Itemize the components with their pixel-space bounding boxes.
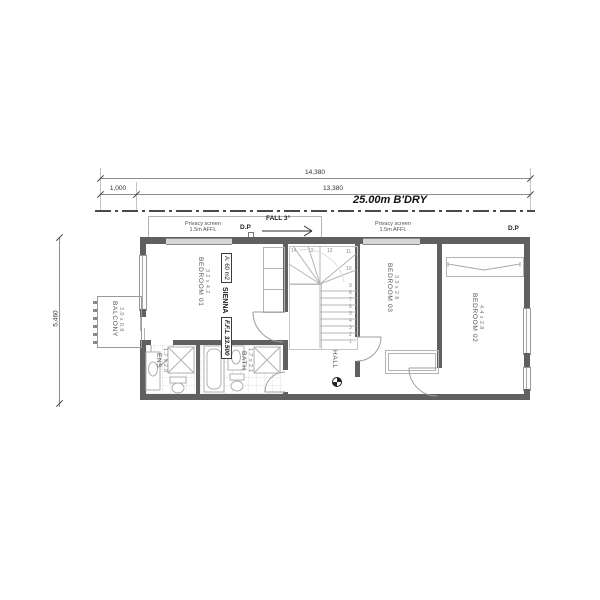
plan-series-label: SIENNA bbox=[221, 285, 232, 315]
stair-number: 13 bbox=[308, 248, 314, 254]
floor-plan: 14,380 1,000 13,380 25.00m B'DRY 5,460 P… bbox=[0, 0, 600, 600]
stair-number: 3 bbox=[349, 325, 352, 331]
room-dims: 3.0 x 0.9 bbox=[118, 301, 124, 337]
room-name: BEDROOM 01 bbox=[197, 257, 204, 307]
extension-line bbox=[530, 168, 531, 212]
stair-number: 12 bbox=[327, 248, 333, 254]
area-label: A: 60 m2 bbox=[221, 253, 232, 283]
downpipe-label-right: D.P bbox=[508, 225, 519, 232]
privacy-screen-note-right: Privacy screen 1.5m AFFL bbox=[362, 221, 424, 234]
dimension-line-total bbox=[100, 178, 530, 179]
room-name: BEDROOM 02 bbox=[471, 293, 478, 343]
privacy-screen-text: Privacy screen bbox=[185, 221, 221, 227]
privacy-screen-note-left: Privacy screen 1.5m AFFL bbox=[168, 221, 238, 234]
stair-number: 6 bbox=[349, 304, 352, 310]
smoke-alarm-icon bbox=[333, 378, 342, 387]
stair-number: 1 bbox=[349, 339, 352, 345]
ens-label: ENS 1.7 x 2.0 bbox=[155, 348, 168, 373]
robe-shelf bbox=[263, 268, 283, 269]
plan-info-group: A: 60 m2 SIENNA F.F.L 33.500 bbox=[221, 253, 232, 359]
robe-bed1 bbox=[263, 247, 285, 313]
stair-number: 2 bbox=[349, 332, 352, 338]
bedroom-02-label: BEDROOM 02 4.4 x 2.8 bbox=[471, 293, 484, 343]
stair-number: 10 bbox=[346, 266, 352, 272]
wall-right-seg bbox=[524, 389, 530, 400]
dimension-line-split bbox=[100, 194, 530, 195]
wall-stub bbox=[283, 392, 288, 394]
bedroom-03-label: BEDROOM 03 3.3 x 2.8 bbox=[386, 263, 399, 313]
stair-number: 8 bbox=[349, 290, 352, 296]
bath-label: BATH 1.7 x 2.1 bbox=[240, 348, 253, 373]
privacy-screen-left bbox=[166, 238, 232, 245]
privacy-screen-sub: 1.5m AFFL bbox=[190, 227, 217, 233]
wall-ens-bath bbox=[196, 345, 200, 394]
room-name: BALCONY bbox=[111, 301, 118, 337]
extension-line bbox=[136, 182, 137, 212]
room-name: ENS bbox=[155, 348, 162, 373]
room-name: BATH bbox=[240, 348, 247, 373]
boundary-label: 25.00m B'DRY bbox=[330, 194, 450, 206]
stair-void bbox=[289, 284, 322, 350]
robe-bed3-inner bbox=[388, 353, 436, 371]
boundary-line bbox=[95, 210, 535, 212]
wall-bath-hall bbox=[283, 342, 288, 370]
fall-label: FALL 3° bbox=[266, 215, 290, 222]
room-dims: 3.2 x 4.2 bbox=[204, 257, 210, 307]
wall-right-seg bbox=[524, 353, 530, 367]
dimension-side: 5,460 bbox=[53, 304, 60, 334]
stair-number: 14 bbox=[291, 248, 297, 254]
wall-bottom bbox=[140, 394, 530, 400]
wall-left-seg bbox=[140, 237, 146, 255]
window-bed2 bbox=[523, 308, 531, 355]
bedroom-01-label: BEDROOM 01 3.2 x 4.2 bbox=[197, 257, 210, 307]
hall-label: HALL bbox=[331, 350, 338, 369]
balcony-balustrade bbox=[93, 298, 97, 344]
dimension-inner: 13,380 bbox=[303, 185, 363, 192]
room-dims: 1.7 x 2.0 bbox=[162, 348, 168, 373]
stair-number: 11 bbox=[346, 249, 351, 255]
privacy-screen-text: Privacy screen bbox=[375, 221, 411, 227]
room-dims: 1.7 x 2.1 bbox=[247, 348, 253, 373]
window-bed2-low bbox=[523, 367, 531, 391]
wall-left-seg bbox=[140, 341, 146, 400]
stair-number: 4 bbox=[349, 318, 352, 324]
privacy-screen-right bbox=[363, 238, 420, 245]
stair-number: 9 bbox=[349, 283, 352, 289]
ffl-label: F.F.L 33.500 bbox=[221, 317, 232, 359]
dimension-offset: 1,000 bbox=[103, 185, 133, 192]
stair-number: 5 bbox=[349, 311, 352, 317]
room-name: HALL bbox=[331, 350, 338, 369]
dimension-total: 14,380 bbox=[285, 169, 345, 176]
wall-hall-bed3-low bbox=[355, 361, 360, 377]
robe-bed2 bbox=[446, 257, 524, 277]
downpipe-label-left: D.P bbox=[240, 224, 251, 231]
stair-number: 7 bbox=[349, 297, 352, 303]
ens-tiles bbox=[146, 345, 196, 394]
balcony-label: BALCONY 3.0 x 0.9 bbox=[111, 301, 124, 337]
room-name: BEDROOM 03 bbox=[386, 263, 393, 313]
extension-line bbox=[100, 168, 101, 212]
room-dims: 3.3 x 2.8 bbox=[393, 263, 399, 313]
robe-shelf bbox=[263, 289, 283, 290]
wall-right-seg bbox=[524, 237, 530, 308]
room-dims: 4.4 x 2.8 bbox=[478, 293, 484, 343]
privacy-screen-sub: 1.5m AFFL bbox=[380, 227, 407, 233]
